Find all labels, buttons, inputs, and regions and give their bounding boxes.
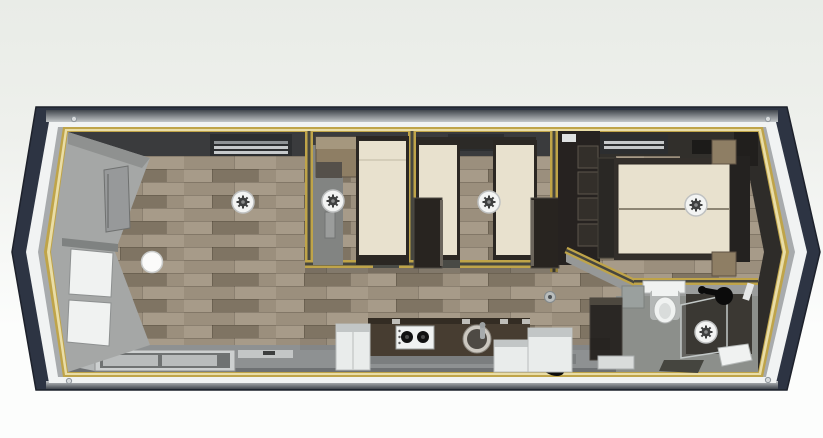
tall-cabinet-top <box>590 298 622 305</box>
corner-bolt-bottom-left <box>66 378 71 383</box>
counter-item <box>392 319 400 324</box>
floor-plan-render: Top-down 3D floor plan render of a singl… <box>0 0 823 438</box>
shower-head-disc <box>715 287 733 305</box>
ac-vent-living <box>210 134 292 156</box>
downlight-center <box>548 295 552 299</box>
kitchen-cabinet-right-small <box>494 340 528 372</box>
counter-item <box>462 319 470 324</box>
shelf-compartment <box>578 172 598 194</box>
hob-knob <box>398 330 400 332</box>
headboard <box>730 156 750 262</box>
toilet-seat <box>659 303 671 319</box>
wardrobe-left <box>414 198 442 268</box>
bay-window-pane-lower <box>67 300 111 346</box>
ac-vent-master <box>600 134 668 154</box>
nightstand-bottom <box>712 252 736 276</box>
shelf-compartment <box>578 224 598 246</box>
wardrobe-right <box>531 198 559 268</box>
floor-plan-canvas: Top-down 3D floor plan render of a singl… <box>0 0 823 438</box>
kitchen-cabinet-right-large <box>528 328 572 372</box>
window-latch <box>263 351 275 355</box>
wall-shadow <box>305 268 558 273</box>
corner-bolt-bottom-right <box>765 377 770 382</box>
door-mat <box>598 356 634 369</box>
shower-pipe <box>698 286 706 294</box>
shelf-item <box>562 134 576 142</box>
bed-mattress <box>359 141 406 255</box>
burner-cap <box>405 335 409 339</box>
hob-knob <box>398 342 400 344</box>
burner-cap <box>421 335 425 339</box>
vent-slat <box>604 141 664 144</box>
wall-shelf <box>325 212 335 238</box>
ceiling-light-bedroom2 <box>478 191 500 213</box>
counter-item <box>522 319 530 324</box>
ceiling-light-living <box>232 191 254 213</box>
nightstand-top <box>712 140 736 164</box>
ceiling-light-bathroom <box>695 321 717 343</box>
hall-downlight <box>545 292 556 303</box>
wardrobe-left-edge <box>440 200 443 266</box>
cabinet-top <box>336 324 370 332</box>
bed-mattress <box>496 145 534 255</box>
wall-cabinet <box>692 140 712 154</box>
hob-knob <box>398 336 400 338</box>
bay-window-pane-upper <box>69 249 113 297</box>
cabinet-top <box>494 340 528 347</box>
floor-hatch <box>659 360 704 373</box>
open-shelving-unit <box>558 131 600 265</box>
ceiling-light-bedroom1 <box>322 190 344 212</box>
room-bathroom <box>616 281 758 373</box>
vent-slat <box>214 141 288 144</box>
wall-core <box>411 131 414 268</box>
vent-slat <box>214 151 288 154</box>
roof-edge-top-band <box>46 110 778 122</box>
shelf-compartment <box>578 198 598 220</box>
faucet-head <box>480 322 486 328</box>
master-double-bed <box>614 140 750 276</box>
counter-item <box>500 319 508 324</box>
toilet-tank <box>652 286 678 296</box>
toilet <box>650 286 680 323</box>
kitchen-cabinet-left <box>336 324 370 370</box>
bed-bedroom1 <box>356 136 409 265</box>
wardrobe-right-edge <box>531 200 534 266</box>
vent-slat <box>604 146 664 149</box>
wardrobe-lower <box>316 162 342 178</box>
master-wardrobe-column <box>598 158 616 258</box>
tall-dark-cabinet <box>590 298 622 360</box>
cabinet-top <box>528 328 572 337</box>
wall-core <box>308 131 311 268</box>
wall-living-bedroom1 <box>305 131 313 268</box>
round-table <box>142 252 163 273</box>
ceiling-light-master <box>685 194 707 216</box>
corner-bolt-top-left <box>71 116 76 121</box>
window-pane <box>162 355 217 366</box>
vent-slat <box>214 146 288 149</box>
washbasin-unit <box>622 286 644 308</box>
gas-hob <box>396 326 434 349</box>
corner-bolt-top-right <box>765 116 770 121</box>
shelf-compartment <box>578 146 598 168</box>
